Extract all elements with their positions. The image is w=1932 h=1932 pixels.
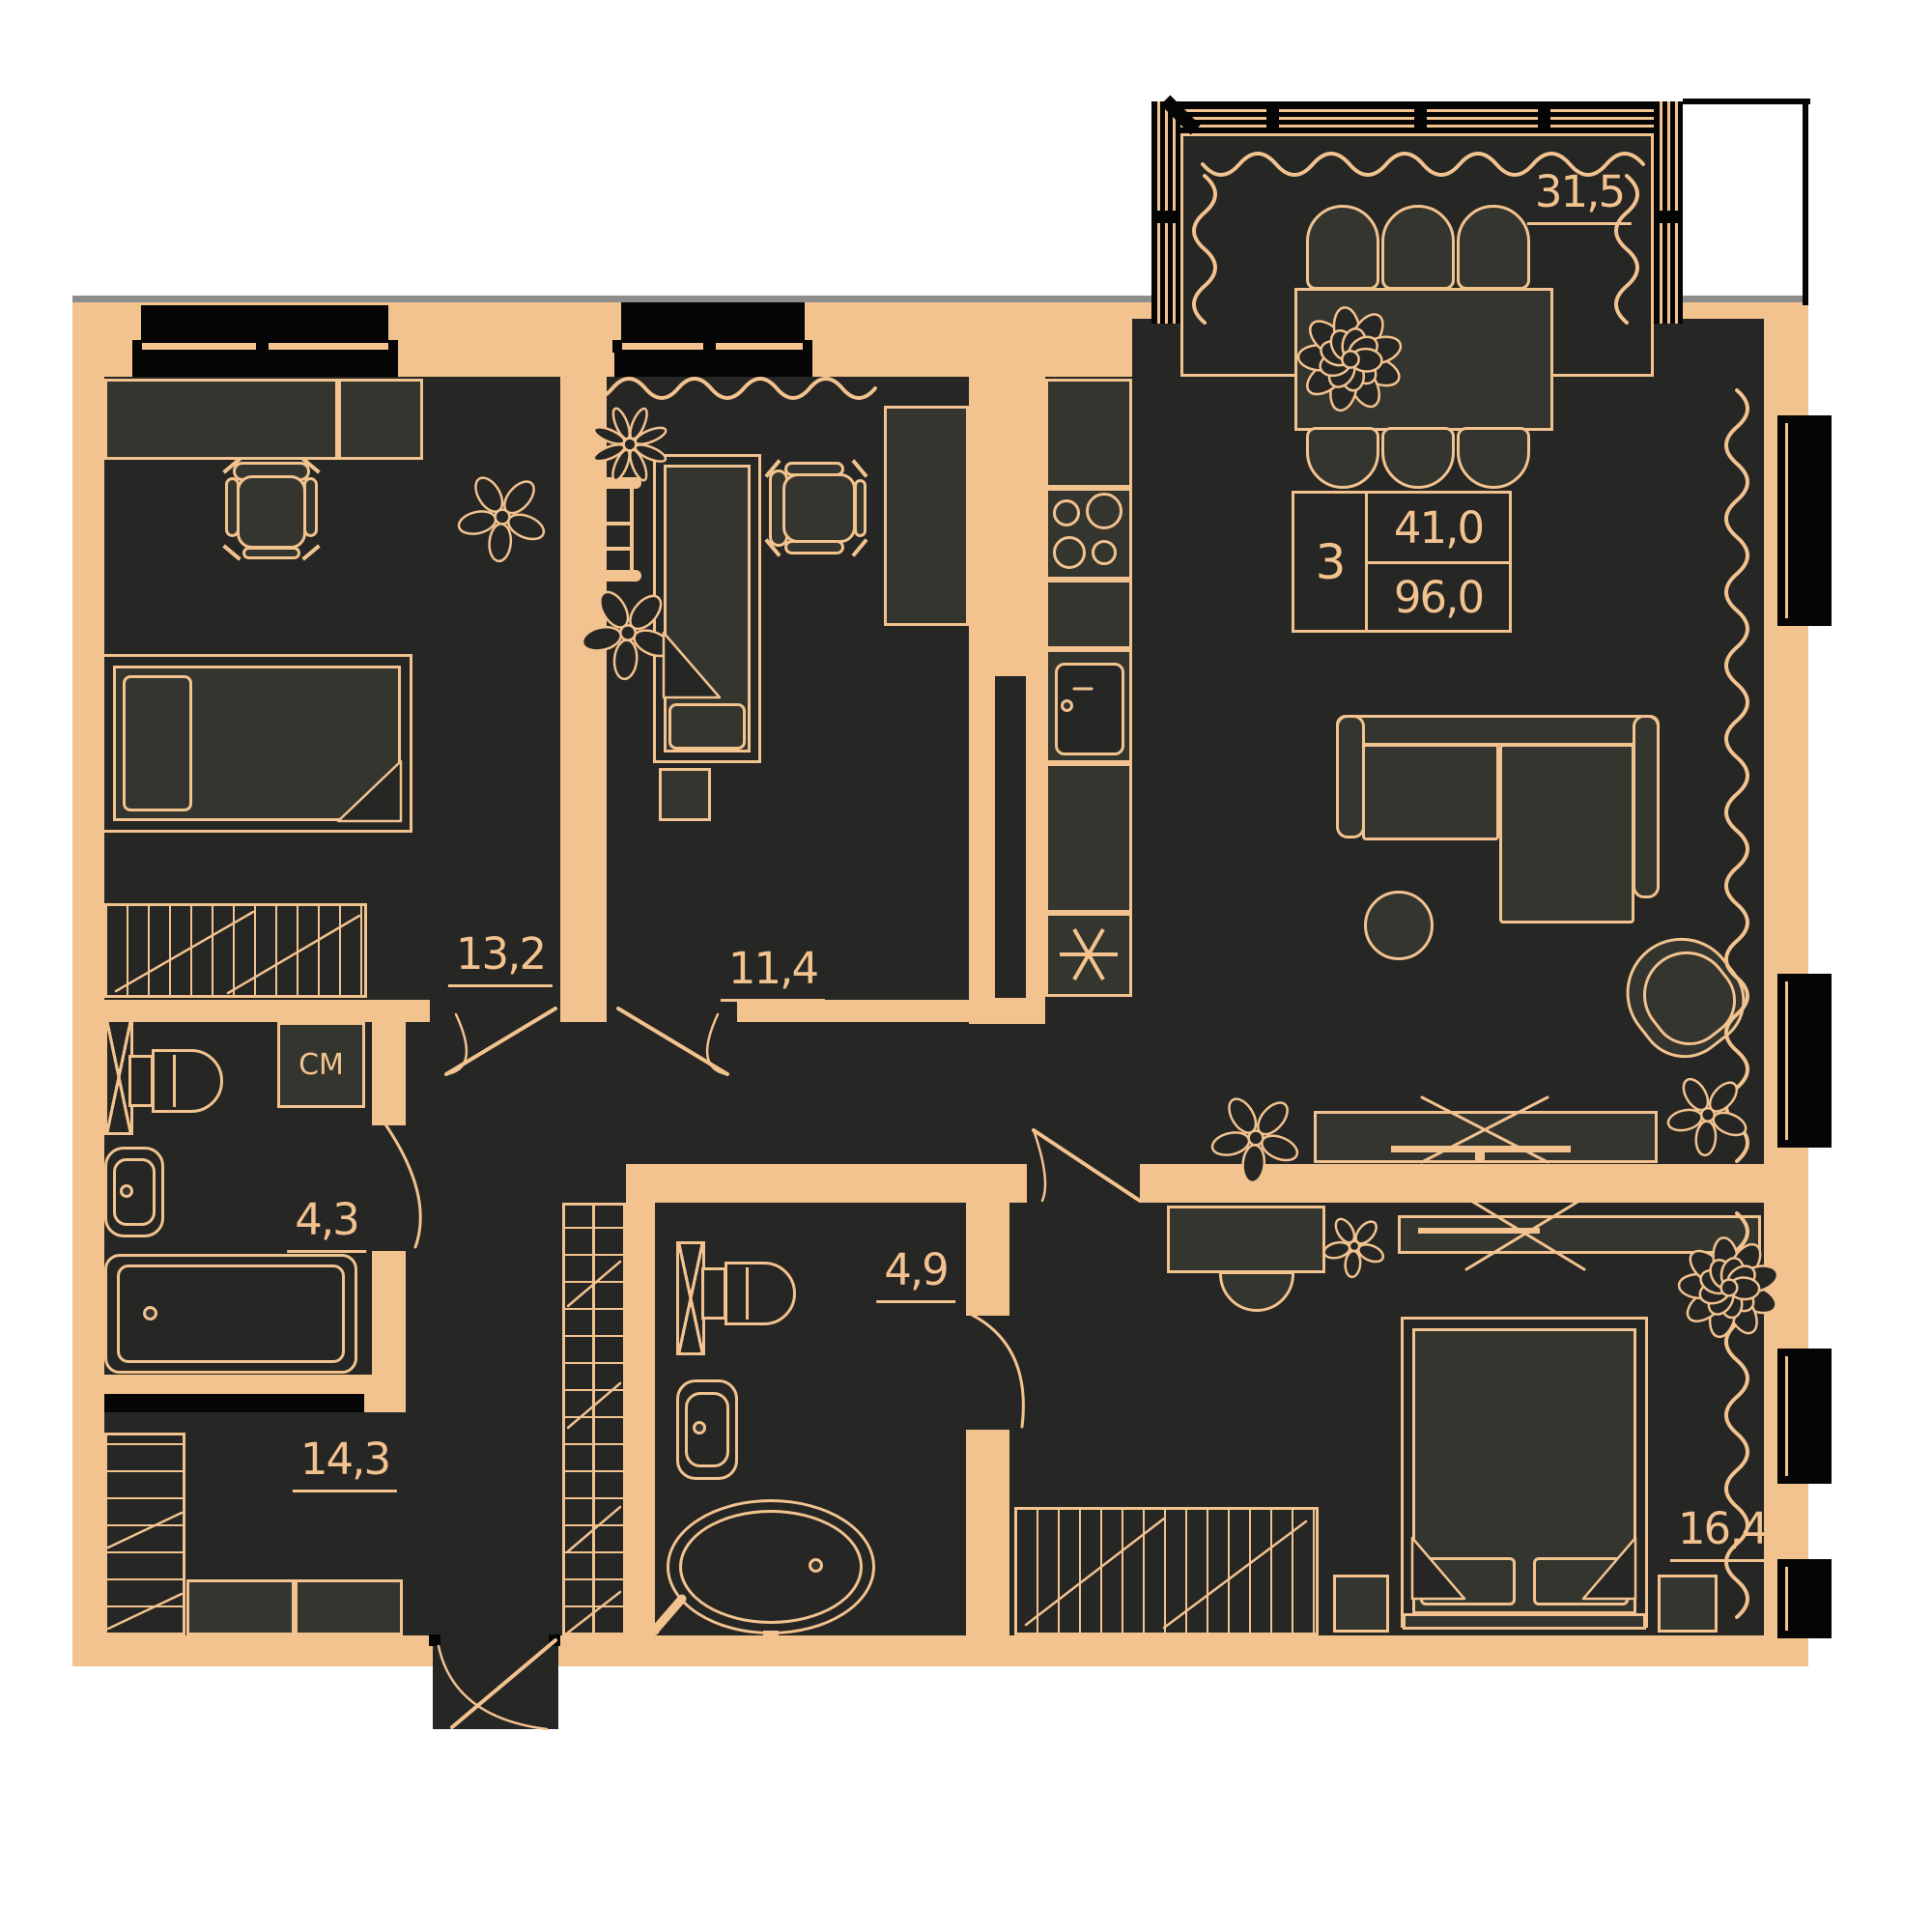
- circle-stove-burner: [1086, 493, 1122, 529]
- threshold: [104, 1394, 364, 1412]
- sink-inner: [685, 1392, 729, 1467]
- kitchen-counter: [1045, 580, 1132, 649]
- circle-sink-faucet: [1061, 699, 1073, 712]
- dining-table: [1294, 288, 1553, 431]
- info-rooms-count: 3: [1294, 494, 1365, 630]
- plant-stand-rung: [583, 547, 630, 551]
- circle-stove-burner: [1053, 536, 1086, 569]
- bed-footboard: [1403, 1613, 1646, 1630]
- plant-stand-rail: [630, 489, 634, 570]
- toilet-tank: [701, 1267, 726, 1320]
- dining-chair: [1306, 427, 1379, 489]
- area-label-bedroom-master: 16,4: [1670, 1507, 1775, 1562]
- desk: [884, 406, 969, 626]
- office-chair-part: [854, 479, 867, 537]
- dining-chair: [1381, 205, 1455, 290]
- nightstand: [1333, 1575, 1389, 1633]
- tv-stand: [1475, 1152, 1485, 1161]
- area-label-bedroom-top-left: 13,2: [448, 932, 553, 987]
- circle-sink-drain: [120, 1184, 133, 1198]
- area-label-hallway: 14,3: [293, 1437, 397, 1492]
- toilet-tank: [128, 1055, 154, 1107]
- info-box: 3 41,0 96,0: [1292, 491, 1512, 633]
- sofa-back: [1336, 715, 1660, 746]
- wardrobe: [1014, 1507, 1319, 1635]
- bed-pillow: [668, 703, 746, 750]
- washing-machine-label: СМ: [298, 1048, 344, 1082]
- area-label-bathroom-large: 4,9: [876, 1248, 955, 1303]
- info-living-area: 41,0: [1368, 494, 1509, 561]
- plant-stand-cap: [572, 477, 641, 489]
- armchair: [1605, 916, 1764, 1076]
- info-total-area: 96,0: [1368, 564, 1509, 630]
- office-chair: [225, 462, 318, 558]
- sofa-armrest: [1633, 715, 1660, 898]
- desk: [104, 379, 338, 460]
- circle-stove-burner: [1092, 540, 1117, 565]
- bed-pillow: [1420, 1557, 1516, 1605]
- floor-plan: СМ 3 41,0 96,0 31,5 13,2 11,4 4,3 4,9 14…: [0, 0, 1932, 1932]
- circle-pouf: [1364, 891, 1434, 960]
- circle-stove-burner: [1053, 499, 1080, 526]
- tv: [1418, 1228, 1540, 1234]
- sofa-armrest: [1336, 715, 1365, 838]
- office-chair-part: [237, 475, 306, 549]
- washing-machine: СМ: [277, 1022, 365, 1108]
- area-label-bedroom-middle: 11,4: [721, 947, 825, 1002]
- office-chair-part: [301, 544, 320, 560]
- hall-cabinet: [295, 1579, 403, 1635]
- office-chair-part: [851, 459, 867, 477]
- toilet-bowl: [724, 1262, 796, 1325]
- toilet-bowl: [152, 1049, 223, 1113]
- dining-chair: [1457, 205, 1530, 290]
- tv-console: [1314, 1111, 1658, 1163]
- furniture-layer: [0, 0, 1932, 1932]
- bed-pillow: [1533, 1557, 1629, 1605]
- bathtub-inner: [679, 1510, 863, 1624]
- office-chair: [769, 462, 866, 554]
- dining-chair: [1381, 427, 1455, 489]
- bathtub-tick: [763, 1631, 779, 1635]
- area-label-bathroom-small: 4,3: [287, 1198, 366, 1253]
- hall-cabinet: [186, 1579, 295, 1635]
- desk-cabinet: [338, 379, 423, 460]
- wardrobe: [104, 1433, 185, 1635]
- circle-bathtub-drain: [809, 1558, 823, 1573]
- toilet-divider: [173, 1055, 176, 1107]
- office-chair-part: [222, 544, 241, 560]
- office-chair-part: [851, 538, 867, 556]
- bed-pillow: [123, 675, 192, 811]
- plant-stand-rail: [580, 489, 583, 570]
- toilet-divider: [746, 1267, 749, 1320]
- wardrobe-divider: [592, 1206, 595, 1633]
- kitchen-counter: [1045, 763, 1132, 913]
- desk-chair: [1219, 1271, 1294, 1312]
- tv: [1391, 1146, 1571, 1152]
- office-chair-part: [782, 473, 856, 543]
- circle-sink-drain: [693, 1421, 706, 1435]
- nightstand: [659, 768, 711, 821]
- plant-stand-rung: [583, 522, 630, 526]
- plant-stand-cap: [572, 570, 641, 582]
- sofa-chaise: [1499, 744, 1634, 923]
- tv-console: [1398, 1215, 1761, 1254]
- area-label-living-kitchen: 31,5: [1527, 170, 1632, 225]
- dining-chair: [1306, 205, 1379, 290]
- dining-chair: [1457, 427, 1530, 489]
- wardrobe: [104, 903, 367, 998]
- armchair-cushion: [1626, 934, 1751, 1061]
- circle-bathtub-drain: [143, 1306, 157, 1321]
- nightstand: [1658, 1575, 1718, 1633]
- sofa-seat: [1362, 744, 1499, 840]
- office-chair-part: [242, 547, 300, 559]
- desk: [1167, 1206, 1325, 1273]
- kitchen-counter: [1045, 379, 1132, 488]
